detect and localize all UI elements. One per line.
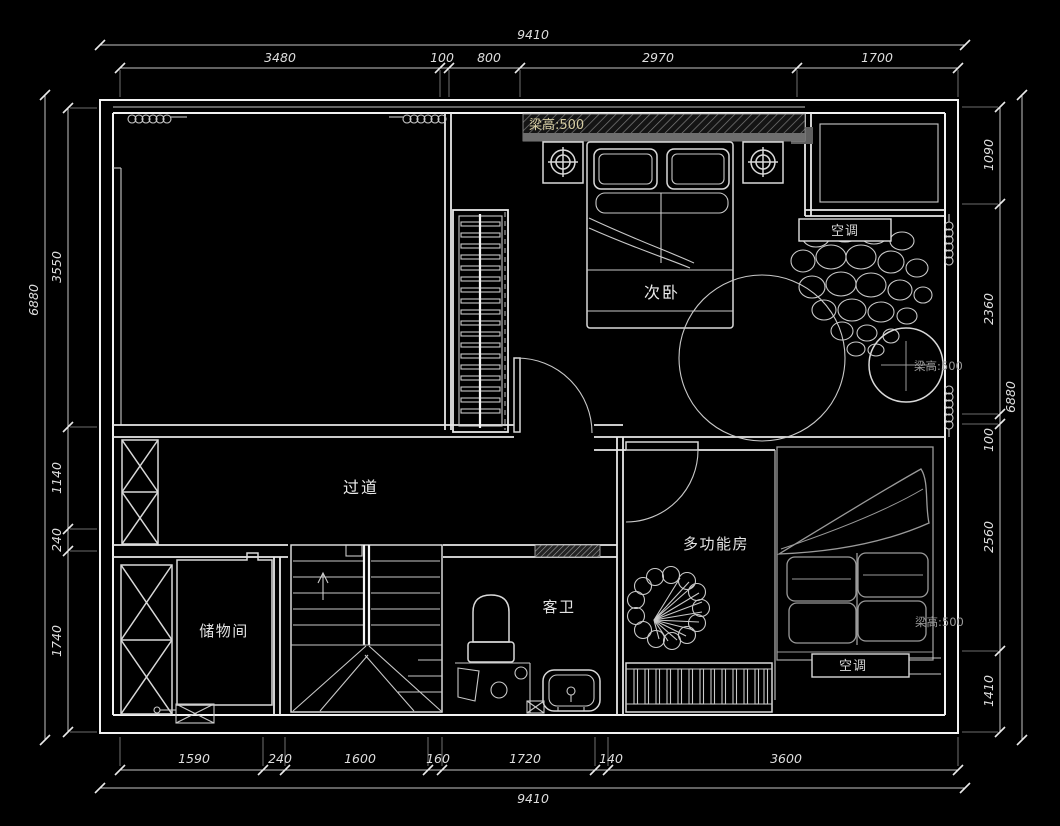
column-x-upper-icon [122, 440, 158, 544]
louver-vent [626, 663, 772, 712]
cad-floorplan-view: 9410 3480 100 800 2970 1700 [0, 0, 1060, 826]
wardrobe-x-tall-icon [121, 565, 172, 714]
guest-bath: 客卫 [455, 595, 600, 713]
beam-band-top: 梁高:500 [523, 114, 805, 141]
dim-label: 2560 [981, 521, 996, 553]
vanity-counter [455, 663, 530, 713]
nightstand-right-icon [743, 142, 783, 183]
bed-secondary-icon: 次卧 [587, 142, 733, 328]
dim-label-bottom-total: 9410 [517, 791, 549, 806]
bed-multifunction-icon [777, 447, 933, 660]
room-label-storage: 储物间 [199, 622, 249, 640]
dim-top-overall: 9410 [95, 27, 970, 50]
dim-label-top-total: 9410 [517, 27, 549, 42]
dim-top-chain: 3480 100 800 2970 1700 [115, 50, 963, 97]
dim-label-right-total: 6880 [1003, 381, 1018, 413]
dim-label: 100 [981, 428, 996, 452]
dim-left-chain: 3550 1140 240 1740 [49, 103, 97, 737]
dim-label: 1590 [178, 751, 210, 766]
dim-label: 140 [599, 751, 623, 766]
dim-label: 3480 [264, 50, 296, 65]
dim-left-overall: 6880 [26, 90, 50, 745]
toilet-icon [468, 595, 514, 662]
storage-room: 储物间 [177, 553, 272, 705]
ac-unit-top: 空调 [799, 219, 891, 241]
ac-label-top: 空调 [831, 224, 859, 239]
louver-cabinet [453, 210, 508, 432]
dim-label: 1140 [49, 462, 64, 494]
room-label-corridor: 过道 [343, 478, 379, 497]
dim-label: 1740 [49, 625, 64, 657]
dim-label: 1700 [861, 50, 893, 65]
alcove-walls [791, 113, 945, 216]
dim-label: 1720 [509, 751, 541, 766]
dim-label: 240 [268, 751, 292, 766]
hatched-wall-segment [535, 545, 600, 557]
beam-note-mid: 梁高:500 [914, 359, 963, 373]
dim-right-overall: 6880 [1003, 90, 1027, 745]
dim-label: 2360 [981, 293, 996, 325]
beam-note-bottom: 梁高:500 [915, 615, 964, 629]
door-multifunction [626, 442, 698, 522]
beam-note-top: 梁高:500 [529, 117, 584, 133]
dim-label: 160 [426, 751, 450, 766]
dim-label: 1600 [344, 751, 376, 766]
threshold-mark [346, 545, 362, 556]
dim-right-chain: 1090 2360 100 2560 1410 [962, 102, 1005, 737]
room-label-multifunction: 多功能房 [683, 535, 749, 553]
room-label-guest-bath: 客卫 [542, 598, 575, 616]
room-label-secondary-bedroom: 次卧 [644, 283, 680, 302]
dim-bottom-chain: 1590 240 1600 160 1720 140 3600 [115, 737, 963, 775]
dim-label: 1410 [981, 675, 996, 707]
dim-label: 100 [430, 50, 454, 65]
ac-label-bottom: 空调 [839, 659, 867, 674]
door-secondary-bedroom [514, 358, 592, 433]
ac-unit-bottom: 空调 [812, 654, 941, 677]
dim-label: 1090 [981, 139, 996, 171]
dim-label: 2970 [642, 50, 674, 65]
dim-label-left-total: 6880 [26, 284, 41, 316]
round-rug-icon [679, 275, 845, 441]
dim-label: 3600 [770, 751, 802, 766]
dim-label: 3550 [49, 251, 64, 283]
floorplan-canvas[interactable]: 9410 3480 100 800 2970 1700 [0, 0, 1060, 826]
multifunction-room: 多功能房 [626, 447, 964, 712]
wash-basin-icon [543, 670, 600, 711]
dim-bottom-overall: 9410 [95, 783, 970, 806]
dim-label: 800 [477, 50, 501, 65]
plant-icon [628, 567, 710, 650]
nightstand-left-icon [543, 142, 583, 183]
dim-label: 240 [49, 528, 64, 552]
staircase [291, 545, 442, 712]
